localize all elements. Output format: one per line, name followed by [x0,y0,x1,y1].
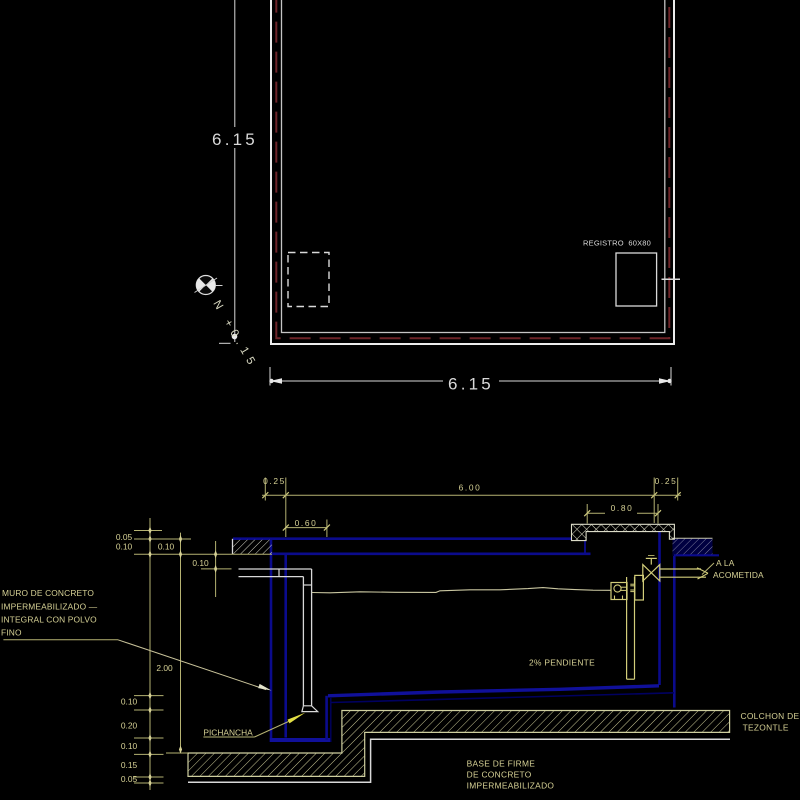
svg-text:REGISTRO 60X80: REGISTRO 60X80 [583,239,651,248]
svg-text:MURO DE CONCRETO: MURO DE CONCRETO [2,588,94,598]
svg-text:0.10: 0.10 [192,558,209,568]
svg-text:0.25: 0.25 [655,476,678,486]
svg-text:0.10: 0.10 [116,541,133,551]
svg-text:0.05: 0.05 [121,774,138,784]
svg-text:PICHANCHA: PICHANCHA [203,727,253,737]
svg-text:0.10: 0.10 [158,541,175,551]
svg-text:0.20: 0.20 [121,721,138,731]
svg-text:DE CONCRETO: DE CONCRETO [467,769,532,779]
svg-text:FINO: FINO [1,627,22,637]
svg-text:2% PENDIENTE: 2% PENDIENTE [529,658,595,668]
svg-text:0.10: 0.10 [121,697,138,707]
svg-text:BASE DE FIRME: BASE DE FIRME [467,759,536,769]
svg-text:6.15: 6.15 [448,375,494,394]
svg-text:6.00: 6.00 [459,483,482,493]
svg-text:A LA: A LA [716,558,735,568]
svg-text:0.25: 0.25 [263,476,286,486]
svg-text:0.80: 0.80 [611,503,634,513]
svg-text:COLCHON DE: COLCHON DE [741,711,800,721]
svg-text:IMPERMEABILIZADO —: IMPERMEABILIZADO — [1,601,98,611]
svg-text:TEZONTLE: TEZONTLE [743,723,789,733]
svg-text:INTEGRAL CON POLVO: INTEGRAL CON POLVO [1,615,97,625]
svg-text:2.00: 2.00 [156,663,173,673]
svg-text:0.10: 0.10 [121,741,138,751]
svg-text:ACOMETIDA: ACOMETIDA [713,570,764,580]
svg-text:IMPERMEABILIZADO: IMPERMEABILIZADO [467,781,555,791]
svg-text:0.15: 0.15 [121,760,138,770]
svg-text:6.15: 6.15 [212,130,258,149]
svg-text:0.60: 0.60 [295,518,318,528]
